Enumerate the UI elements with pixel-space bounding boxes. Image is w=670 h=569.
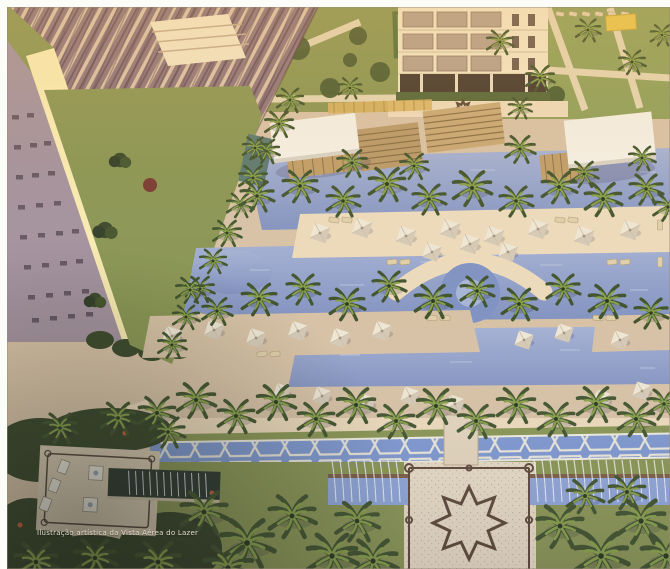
- caption: Ilustração artística da Vista Aérea do L…: [37, 529, 198, 537]
- rendering-frame: Ilustração artística da Vista Aérea do L…: [0, 0, 670, 569]
- corner-shadow-overlay: [0, 0, 670, 569]
- leisure-area-rendering: [0, 0, 670, 569]
